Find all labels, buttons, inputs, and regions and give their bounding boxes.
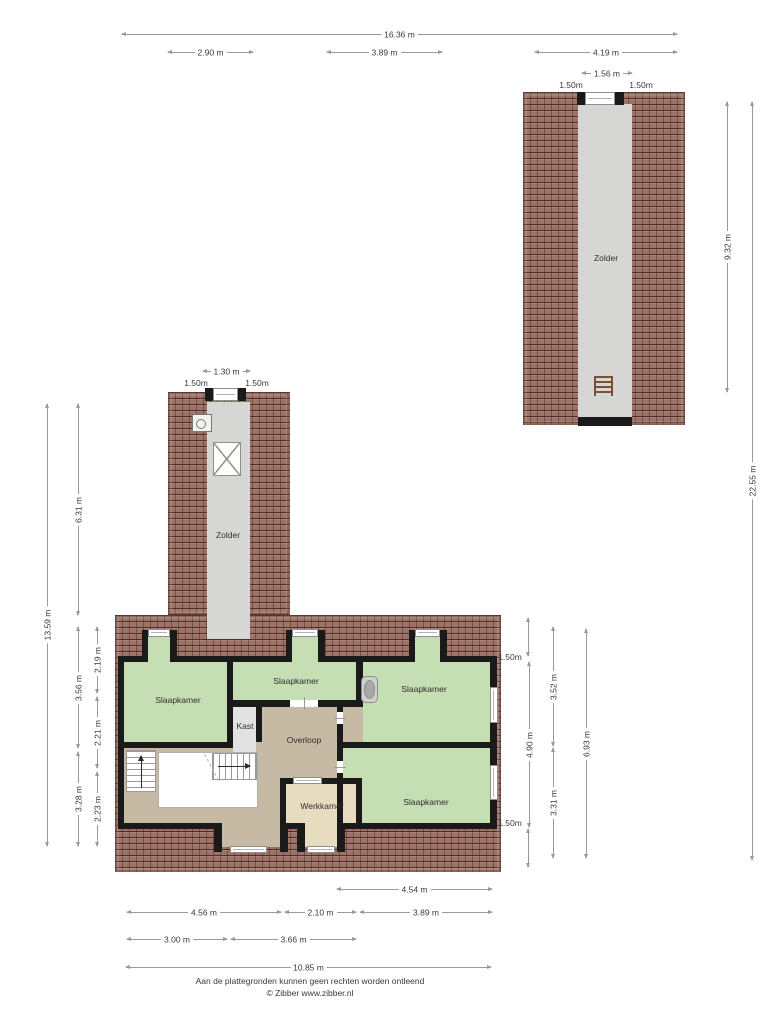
wall [170,630,177,662]
dim-left-total: 13.59 m [47,404,48,846]
room-label-zolder-tower: Zolder [216,531,240,540]
dim-right-roof-top: 1.50m [498,653,522,662]
dim-bottom-w4: 3.89 m [360,912,492,913]
wall [118,742,233,748]
dim-right-total: 22.55 m [752,102,753,860]
floorplan-canvas: Zolder 1.56 m 1.50m 1.50m 9.32 m 22.55 m… [0,0,768,1024]
door-opening [290,700,318,707]
stair-direction-arrow [218,766,250,767]
room-label-werkkamer: Werkkamer [300,802,343,811]
wall [615,92,624,105]
wall [214,823,222,852]
dim-right-h2: 4.90 m [529,662,530,827]
door-opening [337,712,343,724]
wall [337,742,490,748]
room-kast [233,707,256,755]
dim-right-roof-bottom-line [528,829,529,867]
dim-tower-roof-left: 1.50m [184,379,208,388]
dim-top-w2: 3.89 m [327,52,442,53]
dim-left-h1: 3.56 m [78,627,79,748]
dormer-alcove [222,823,280,847]
window [415,629,440,637]
dim-right-h3: 3.31 m [553,748,554,858]
disclaimer-line2: © Zibber www.zibber.nl [118,987,502,999]
dim-barn-roof-left: 1.50m [559,81,583,90]
dim-barn-roof-right: 1.50m [629,81,653,90]
tower-attic-floor [207,402,250,639]
wall [256,707,262,742]
wall [238,388,246,401]
window [490,687,498,723]
dim-left-h2: 3.28 m [78,752,79,846]
window [292,629,318,637]
bathtub-icon [361,676,378,703]
door-opening [337,761,343,773]
wall [297,823,305,852]
room-label-zolder-barn: Zolder [594,254,618,263]
dim-right-roof-bottom: 1.50m [498,819,522,828]
wall [280,778,286,823]
dim-left-h5: 2.23 m [97,772,98,846]
window [230,846,267,853]
dim-top-total: 16.36 m [122,34,677,35]
wall [356,778,362,823]
dim-bottom-w2: 4.56 m [127,912,281,913]
room-slaapkamer-right-bottom [343,748,490,823]
room-label-kast: Kast [236,722,253,731]
dim-left-h4: 2.21 m [97,697,98,768]
dim-bottom-total: 10.85 m [126,967,491,968]
dim-bottom-w5: 3.00 m [127,939,227,940]
dim-tower-length: 6.31 m [78,404,79,615]
dim-barn-window: 1.56 m [582,73,632,74]
dim-top-w1: 2.90 m [168,52,253,53]
dim-top-w3: 4.19 m [535,52,677,53]
dormer-alcove [305,823,337,847]
room-label-slaapkamer-left: Slaapkamer [155,696,200,705]
ladder-icon [594,376,613,396]
window [585,92,615,105]
window [213,388,238,401]
room-label-slaapkamer-mid: Slaapkamer [273,677,318,686]
wall [490,656,497,829]
window [490,765,498,800]
disclaimer-line1: Aan de plattegronden kunnen geen rechten… [118,975,502,987]
dim-tower-window: 1.30 m [203,371,250,372]
window [293,777,322,784]
dim-left-h3: 2.19 m [97,627,98,693]
wall [578,417,632,426]
room-slaapkamer-right-top [363,662,490,743]
room-label-slaapkamer-right-bottom: Slaapkamer [403,798,448,807]
boiler-icon [192,414,212,432]
dim-right-h1: 3.52 m [553,627,554,746]
dim-barn-length: 9.32 m [727,102,728,392]
dim-tower-roof-right: 1.50m [245,379,269,388]
wall [337,823,345,852]
wall [280,823,288,852]
dim-bottom-w3: 2.10 m [285,912,356,913]
dim-right-h4: 6.93 m [586,629,587,858]
dim-right-roof-top-line [528,618,529,656]
wall [318,630,325,662]
room-label-slaapkamer-right-top: Slaapkamer [401,685,446,694]
wall [577,92,585,105]
window [307,846,335,853]
stair-direction-arrow [141,756,142,788]
dormer-alcove [292,636,318,662]
dormer-alcove [415,636,440,662]
disclaimer: Aan de plattegronden kunnen geen rechten… [118,975,502,1000]
dim-bottom-w6: 3.66 m [231,939,356,940]
dormer-alcove [148,636,170,662]
dim-bottom-w1: 4.54 m [337,889,492,890]
wall [440,630,447,662]
window [148,629,170,637]
skylight-icon [213,442,241,476]
wall [205,388,213,401]
room-label-overloop: Overloop [287,736,322,745]
